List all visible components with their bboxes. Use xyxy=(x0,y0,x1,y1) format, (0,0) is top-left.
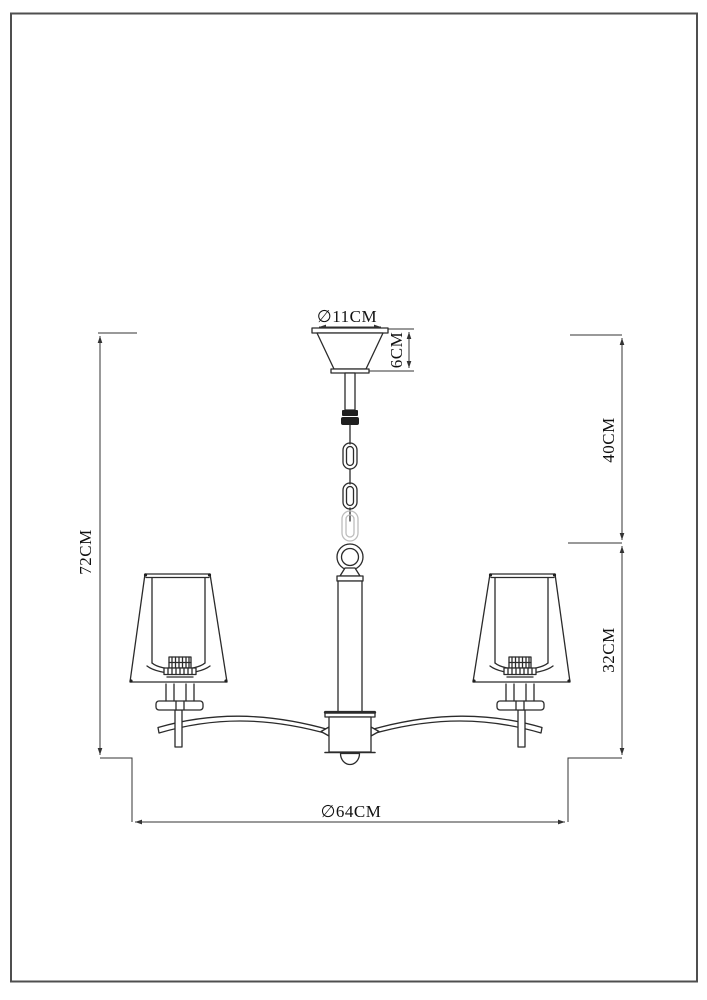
suspension-chain xyxy=(342,425,358,541)
label-body-height: 32CM xyxy=(599,627,618,672)
label-canopy-diameter: ∅11CM xyxy=(317,307,377,326)
label-suspension-length: 40CM xyxy=(599,417,618,462)
left-arm xyxy=(158,716,330,734)
left-shade xyxy=(129,573,227,682)
ext-step-right xyxy=(568,758,622,822)
drawing-page: 72CM 40CM 32CM 6CM ∅11CM ∅64CM xyxy=(0,0,707,1000)
label-overall-diameter: ∅64CM xyxy=(321,802,382,821)
center-hub xyxy=(321,712,379,765)
hanging-ring xyxy=(337,544,363,570)
ceiling-canopy xyxy=(312,328,388,373)
right-arm xyxy=(370,716,542,734)
fixture xyxy=(129,328,570,765)
chandelier-technical-drawing: 72CM 40CM 32CM 6CM ∅11CM ∅64CM xyxy=(0,0,707,1000)
right-socket xyxy=(504,657,536,677)
right-lamp-stem xyxy=(497,684,544,747)
faded-chain-link xyxy=(342,511,358,541)
left-socket xyxy=(164,657,196,677)
right-shade xyxy=(472,573,570,682)
label-total-height: 72CM xyxy=(76,529,95,574)
bottom-ball-finial xyxy=(341,754,360,765)
label-canopy-height: 6CM xyxy=(387,332,406,368)
left-lamp-stem xyxy=(156,684,203,747)
ext-step-left xyxy=(100,758,132,822)
center-column xyxy=(337,568,363,712)
hanging-rod xyxy=(341,373,359,425)
